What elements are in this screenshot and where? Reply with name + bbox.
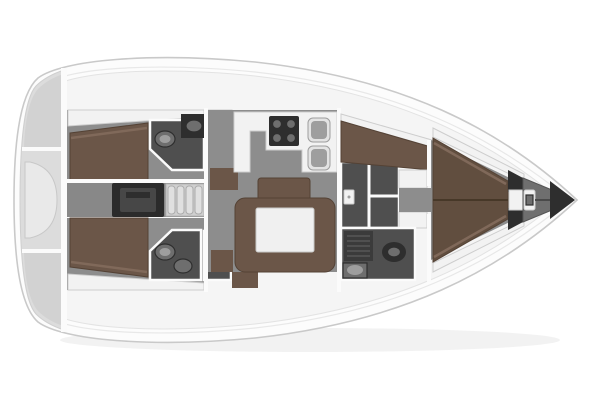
engine-detail xyxy=(126,192,150,198)
step-tread xyxy=(168,186,175,214)
washbasin xyxy=(174,259,192,273)
fwd-bulkhead-bottom xyxy=(427,214,431,282)
forward-head xyxy=(341,228,415,280)
burner xyxy=(287,120,296,129)
washbasin xyxy=(186,120,202,132)
locker xyxy=(399,212,427,228)
windlass-gypsy xyxy=(526,195,533,205)
cabin-entry-floor xyxy=(399,188,431,212)
toilet-bowl xyxy=(388,247,401,257)
lazarette-starboard xyxy=(24,74,64,147)
aft-bulkhead xyxy=(204,108,208,292)
lazarette-port xyxy=(24,253,64,326)
companionway-wall-top xyxy=(67,179,205,183)
cabinet-port xyxy=(211,250,233,272)
stern-platform xyxy=(20,68,67,332)
toilet-bowl xyxy=(160,135,171,143)
locker xyxy=(399,170,427,188)
panel-switch xyxy=(348,196,351,199)
stern-wall-starboard xyxy=(22,147,64,151)
sink-basin xyxy=(311,121,327,139)
sink-basin xyxy=(311,149,327,167)
washbasin xyxy=(347,265,363,275)
step-tread xyxy=(177,186,184,214)
bow-step xyxy=(509,190,523,210)
yacht-floor-plan xyxy=(0,0,600,400)
fwd-bulkhead-top xyxy=(427,140,431,186)
dinette-table xyxy=(256,208,314,252)
burner xyxy=(287,134,296,143)
burner xyxy=(273,120,282,129)
step-tread xyxy=(186,186,193,214)
step-tread xyxy=(195,186,202,214)
burner xyxy=(273,134,282,143)
stern-wall-port xyxy=(22,249,64,253)
floor-plan-canvas xyxy=(0,0,600,400)
toilet-bowl xyxy=(160,248,171,256)
transom-bulkhead xyxy=(61,68,67,332)
engine-inner xyxy=(120,188,156,212)
companionway xyxy=(67,179,205,221)
